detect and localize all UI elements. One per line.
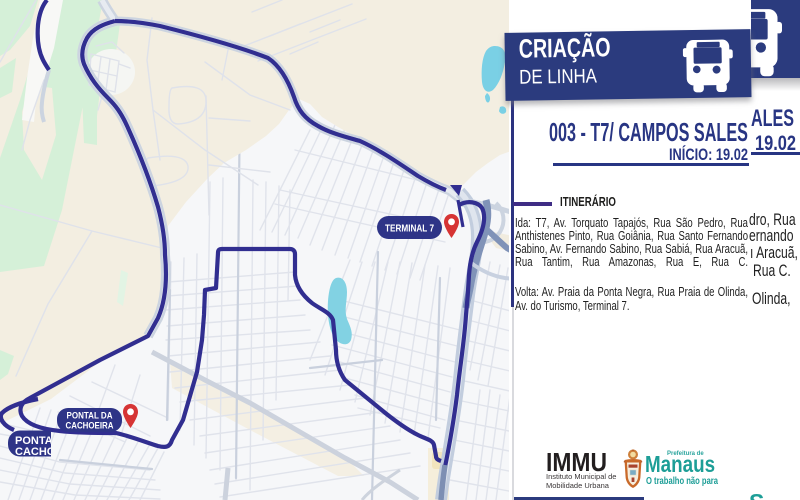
svg-text:CACHOEIRA: CACHOEIRA <box>66 421 114 432</box>
svg-text:TERMINAL 7: TERMINAL 7 <box>385 223 434 235</box>
